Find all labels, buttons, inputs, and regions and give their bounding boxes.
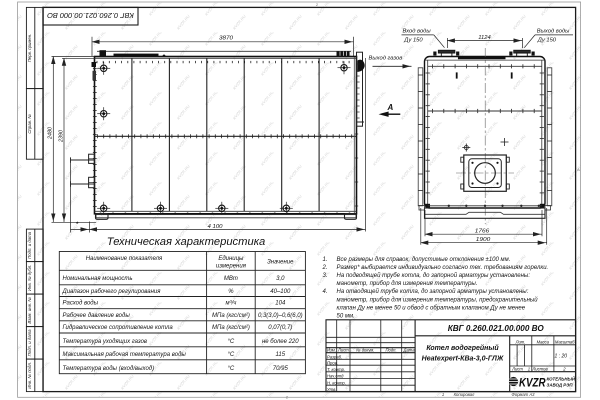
svg-text:1: 1 bbox=[442, 392, 444, 397]
svg-text:Ду 150: Ду 150 bbox=[537, 38, 557, 44]
svg-text:Температура воды (вход/выход): Температура воды (вход/выход) bbox=[63, 366, 155, 372]
svg-text:Листов: Листов bbox=[531, 367, 548, 372]
svg-text:Котел водогрейный: Котел водогрейный bbox=[426, 344, 499, 352]
svg-text:1766: 1766 bbox=[475, 229, 490, 235]
svg-text:%: % bbox=[228, 289, 234, 295]
svg-text:Утв.: Утв. bbox=[327, 387, 337, 392]
svg-text:Формат А3: Формат А3 bbox=[512, 392, 536, 397]
svg-text:°С: °С bbox=[228, 339, 235, 345]
svg-text:1 : 20: 1 : 20 bbox=[555, 354, 568, 360]
svg-text:Т. контр.: Т. контр. bbox=[327, 367, 345, 372]
svg-text:На подводящей трубе котла, до: На подводящей трубе котла, до запорной а… bbox=[337, 272, 531, 279]
svg-text:Все размеры для справок, допус: Все размеры для справок, допустимые откл… bbox=[337, 257, 511, 263]
svg-text:Справ. №: Справ. № bbox=[27, 114, 32, 134]
svg-text:не более 220: не более 220 bbox=[262, 339, 299, 345]
svg-text:МВт: МВт bbox=[224, 276, 238, 282]
svg-text:Перв. примен.: Перв. примен. bbox=[27, 34, 32, 63]
svg-text:Инв. № дубл.: Инв. № дубл. bbox=[27, 265, 32, 291]
svg-text:Выход газов: Выход газов bbox=[369, 56, 403, 62]
svg-text:Расход воды: Расход воды bbox=[63, 301, 99, 307]
svg-text:0,3(3,0)–0,6(6,0): 0,3(3,0)–0,6(6,0) bbox=[258, 313, 303, 319]
svg-text:КВГ 0.260.021.00.000 ВО: КВГ 0.260.021.00.000 ВО bbox=[448, 323, 544, 333]
svg-text:манометр, прибор для измерения: манометр, прибор для измерения температу… bbox=[337, 281, 478, 287]
svg-text:1: 1 bbox=[528, 367, 530, 372]
svg-text:Подп.: Подп. bbox=[386, 348, 397, 353]
svg-text:Наименование показателя: Наименование показателя bbox=[86, 256, 163, 262]
svg-text:Нач.отд: Нач.отд bbox=[327, 374, 344, 379]
svg-text:Размер* выбирается индивидуаль: Размер* выбирается индивидуально согласн… bbox=[337, 265, 549, 271]
svg-text:°С: °С bbox=[228, 352, 235, 358]
svg-text:манометр, прибор для измерения: манометр, прибор для измерения температу… bbox=[337, 296, 539, 303]
svg-text:Выход воды: Выход воды bbox=[537, 29, 570, 35]
svg-text:4 100: 4 100 bbox=[208, 224, 224, 230]
svg-text:А: А bbox=[577, 167, 580, 172]
svg-text:А: А bbox=[387, 103, 394, 112]
svg-text:2.: 2. bbox=[322, 265, 328, 271]
svg-text:Подп. и дата: Подп. и дата bbox=[27, 231, 32, 259]
svg-text:2480: 2480 bbox=[48, 126, 54, 140]
svg-text:Инв. № подл.: Инв. № подл. bbox=[27, 362, 32, 389]
svg-text:Изм.: Изм. bbox=[327, 348, 336, 353]
svg-text:Температура уходящих газов: Температура уходящих газов bbox=[63, 339, 148, 345]
svg-text:Масса: Масса bbox=[537, 339, 550, 344]
svg-text:Рабочее давление воды: Рабочее давление воды bbox=[63, 313, 131, 319]
svg-text:2390: 2390 bbox=[58, 129, 64, 143]
svg-text:1124: 1124 bbox=[478, 35, 491, 41]
svg-text:На отводящей трубе котла, до з: На отводящей трубе котла, до запорной ар… bbox=[337, 288, 529, 295]
svg-text:Номинальная мощность: Номинальная мощность bbox=[63, 276, 133, 282]
svg-text:Масштаб: Масштаб bbox=[555, 339, 575, 344]
svg-text:Лист: Лист bbox=[511, 367, 523, 372]
svg-text:Пров.: Пров. bbox=[327, 360, 338, 365]
svg-text:*: * bbox=[76, 222, 79, 229]
svg-text:МПа (кгс/см²): МПа (кгс/см²) bbox=[212, 313, 250, 319]
svg-text:3.: 3. bbox=[323, 273, 328, 279]
svg-text:104: 104 bbox=[275, 301, 286, 307]
svg-text:0,07(0,7): 0,07(0,7) bbox=[268, 325, 292, 331]
svg-text:Н. контр.: Н. контр. bbox=[327, 380, 346, 385]
svg-text:Копировал: Копировал bbox=[454, 392, 475, 397]
svg-text:°С: °С bbox=[228, 366, 235, 372]
svg-text:KVZR: KVZR bbox=[519, 377, 546, 389]
svg-text:Дата: Дата bbox=[403, 348, 416, 353]
svg-text:50 мм.: 50 мм. bbox=[337, 314, 355, 320]
svg-text:Единицы: Единицы bbox=[218, 256, 244, 262]
svg-text:1900: 1900 bbox=[476, 237, 491, 243]
svg-text:70/95: 70/95 bbox=[273, 366, 289, 372]
svg-text:4.: 4. bbox=[323, 289, 328, 295]
svg-text:Максимальная рабочая температу: Максимальная рабочая температура воды bbox=[63, 352, 187, 358]
svg-text:КВГ 0.260.021.00.000 ВО: КВГ 0.260.021.00.000 ВО bbox=[47, 11, 134, 20]
svg-text:Ду 150: Ду 150 bbox=[403, 38, 423, 44]
svg-text:КОТЕЛЬНЫЙ: КОТЕЛЬНЫЙ bbox=[547, 377, 576, 382]
svg-text:МПа (кгс/см²): МПа (кгс/см²) bbox=[212, 325, 250, 331]
svg-text:40–100: 40–100 bbox=[270, 289, 291, 295]
svg-text:Лит.: Лит. bbox=[515, 339, 526, 344]
svg-text:3870: 3870 bbox=[219, 36, 234, 42]
svg-text:измерения: измерения bbox=[216, 263, 247, 269]
svg-text:Диапазон рабочего регулировани: Диапазон рабочего регулирования bbox=[62, 289, 162, 295]
svg-text:Разраб.: Разраб. bbox=[327, 354, 342, 359]
svg-text:Значение: Значение bbox=[267, 260, 294, 266]
svg-text:м³/ч: м³/ч bbox=[225, 301, 236, 307]
svg-text:ЗАВОД РЭП: ЗАВОД РЭП bbox=[547, 382, 574, 387]
svg-text:Гидравлическое сопротивление к: Гидравлическое сопротивление котла bbox=[63, 325, 174, 331]
svg-text:115: 115 bbox=[276, 352, 286, 358]
svg-text:3,0: 3,0 bbox=[276, 276, 285, 282]
svg-text:Техническая характеристика: Техническая характеристика bbox=[107, 236, 265, 248]
svg-text:Лист: Лист bbox=[337, 348, 349, 353]
svg-text:Heatexpert-КВа-3,0-ГЛЖ: Heatexpert-КВа-3,0-ГЛЖ bbox=[422, 356, 504, 363]
svg-text:Вход воды: Вход воды bbox=[403, 29, 432, 35]
svg-text:Подп. и дата: Подп. и дата bbox=[27, 329, 32, 357]
svg-text:1.: 1. bbox=[323, 257, 328, 263]
svg-text:№ докум.: № докум. bbox=[356, 348, 374, 353]
svg-text:клапан Ду не менее 50 и обвод: клапан Ду не менее 50 и обвод с обратным… bbox=[337, 305, 526, 311]
svg-text:Взам. инв. №: Взам. инв. № bbox=[27, 297, 32, 324]
